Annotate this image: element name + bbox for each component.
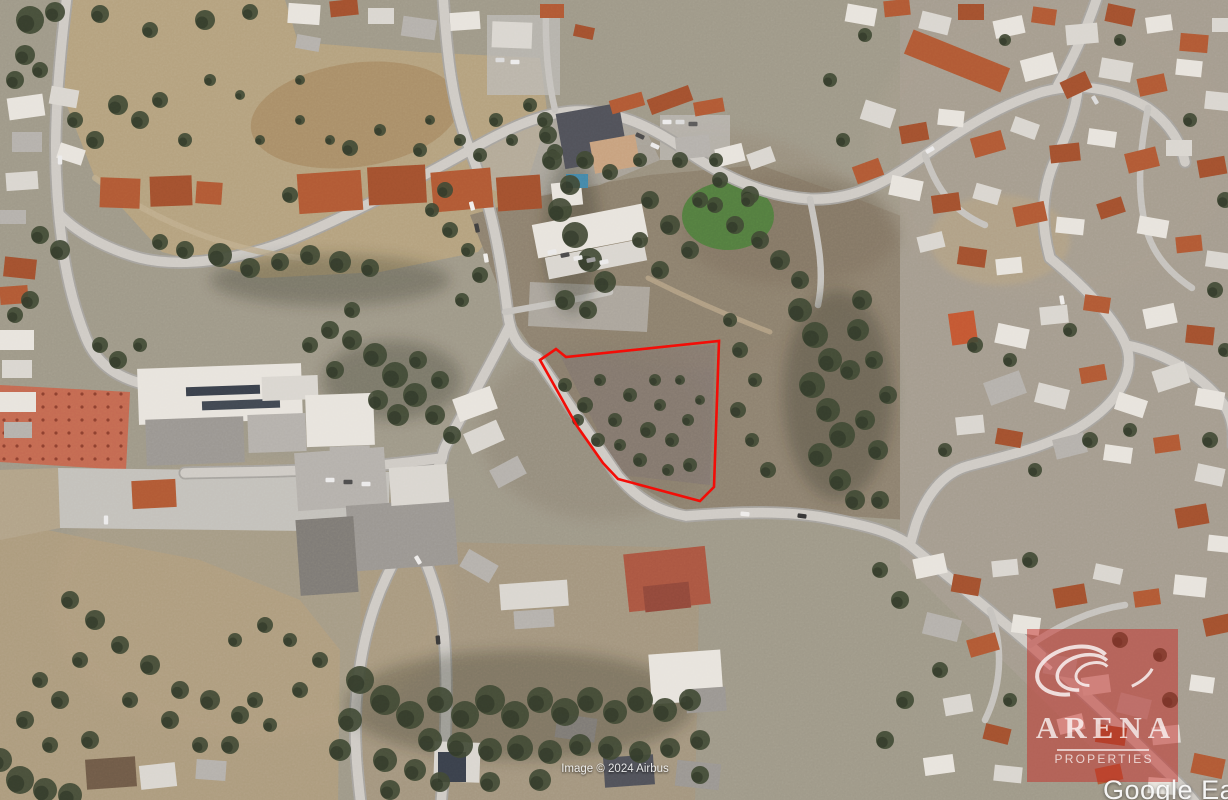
satellite-imagery	[0, 0, 1228, 800]
atmospheric-haze	[0, 0, 1228, 800]
google-earth-watermark: Google Earth	[1103, 775, 1228, 800]
imagery-attribution: Image © 2024 Airbus	[515, 763, 715, 775]
google-earth-viewport[interactable]: ARENA PROPERTIES Image © 2024 Airbus Goo…	[0, 0, 1228, 800]
